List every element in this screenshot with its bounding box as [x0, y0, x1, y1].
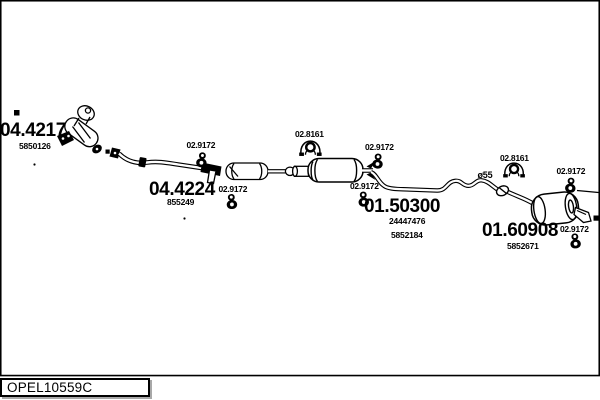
hanger-part-code-label: 02.9172 [350, 182, 379, 191]
drawing-code-label: OPEL10559C [2, 380, 92, 395]
oe-number-rear-muffler: 5852671 [507, 242, 539, 251]
ink-speck [33, 163, 35, 165]
hanger-part-code-label: 02.9172 [219, 185, 248, 194]
part-code-center-muffler: 01.50300 [364, 197, 440, 216]
oe-number-front-pipe: 855249 [167, 198, 194, 207]
part-code-catalyst: 04.4217 [0, 121, 66, 140]
drawing-code-box: OPEL10559C [0, 378, 150, 397]
oe-number-catalyst: 5850126 [19, 142, 51, 151]
resonator-drawing [226, 163, 268, 180]
hanger-part-code-label: 02.9172 [187, 141, 216, 150]
oe-number-center-muffler-1: 24447476 [389, 217, 425, 226]
pipe-diameter-label: ø55 [478, 171, 493, 180]
hanger-part-code-label: 02.9172 [557, 167, 586, 176]
part-code-rear-muffler: 01.60908 [482, 221, 558, 240]
reference-square-marker-left [14, 110, 20, 116]
drawing-frame [1, 1, 600, 376]
exhaust-diagram [0, 0, 600, 400]
hanger-part-code-label: 02.9172 [365, 143, 394, 152]
part-code-front-pipe: 04.4224 [149, 180, 215, 199]
ink-speck [183, 217, 185, 219]
bracket-part-code-label: 02.8161 [295, 130, 324, 139]
bracket-part-code-label: 02.8161 [500, 154, 529, 163]
oe-number-center-muffler-2: 5852184 [391, 231, 423, 240]
hanger-part-code-label: 02.9172 [560, 225, 589, 234]
reference-square-marker-right [594, 216, 599, 221]
exhaust-diagram-page: 04.4217 5850126 04.4224 855249 01.50300 … [0, 0, 600, 400]
